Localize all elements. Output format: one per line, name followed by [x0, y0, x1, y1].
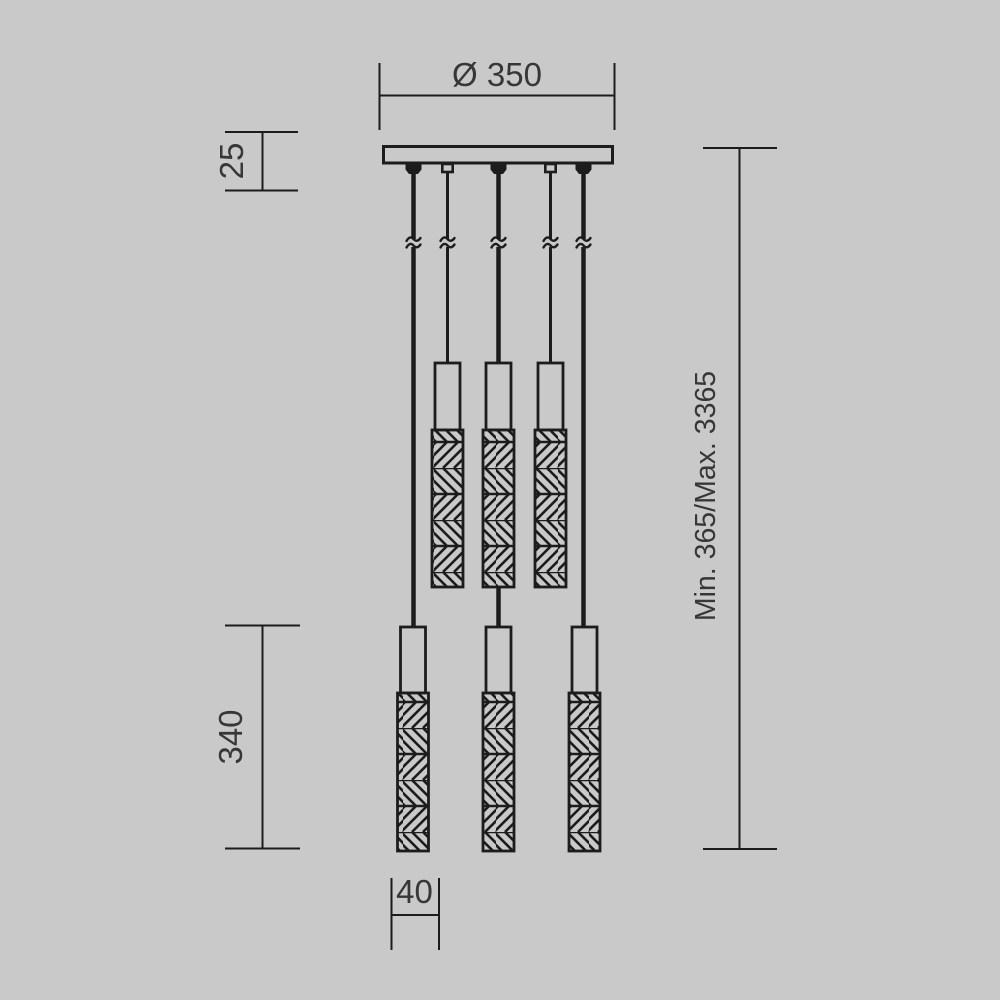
lower-shade-3-crystal	[569, 693, 600, 851]
ceiling-canopy	[384, 147, 613, 164]
upper-shade-2	[483, 363, 514, 587]
cable-break-icon	[406, 237, 422, 247]
upper-shade-2-crystal	[483, 430, 514, 587]
cable-break-icon	[491, 237, 507, 247]
cable-break-icon	[440, 237, 456, 247]
upper-shade-2-stem	[486, 363, 511, 430]
upper-shade-3-stem	[538, 363, 563, 430]
lower-shade-2	[483, 627, 514, 851]
cable-gripper-open-4	[545, 164, 555, 172]
dim-shade-width-label: 40	[396, 873, 433, 910]
lower-shade-3-stem	[572, 627, 597, 693]
lower-shade-1-crystal	[398, 693, 429, 851]
cable-gripper-filled-5	[576, 163, 592, 174]
dim-shade-length-label: 340	[212, 709, 249, 764]
cable-gripper-open-2	[442, 164, 452, 172]
lower-shade-3	[569, 627, 600, 851]
cable-gripper-filled-1	[406, 163, 422, 174]
upper-shade-3-crystal	[535, 430, 566, 587]
dim-suspension-height-label: Min. 365/Max. 3365	[690, 371, 722, 621]
upper-shades	[432, 363, 566, 587]
upper-shade-1-stem	[435, 363, 460, 430]
cable-gripper-filled-3	[491, 163, 507, 174]
upper-shade-3	[535, 363, 566, 587]
technical-drawing-page: Ø 350 25 340 Min. 365/Max. 3365	[0, 0, 1000, 1000]
lower-shade-2-stem	[486, 627, 511, 693]
upper-shade-1	[432, 363, 463, 587]
pendant-dimension-drawing: Ø 350 25 340 Min. 365/Max. 3365	[0, 0, 1000, 1000]
dim-canopy-thickness-label: 25	[213, 143, 250, 180]
upper-shade-1-crystal	[432, 430, 463, 587]
lower-shade-1-stem	[401, 627, 426, 693]
lower-shade-1	[398, 627, 429, 851]
cable-break-icon	[543, 237, 559, 247]
lower-shade-2-crystal	[483, 693, 514, 851]
dim-canopy-diameter-label: Ø 350	[452, 56, 542, 93]
cable-break-icon	[576, 237, 592, 247]
